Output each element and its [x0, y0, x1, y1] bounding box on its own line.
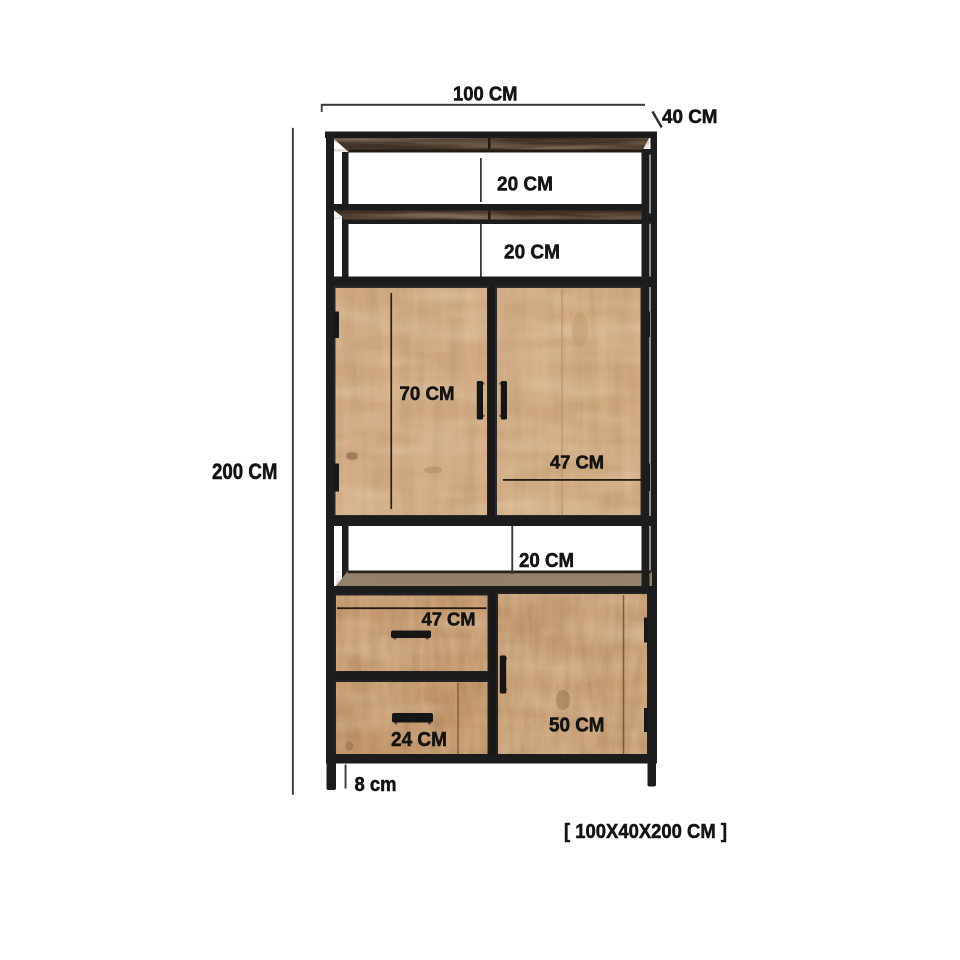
svg-text:20 CM: 20 CM [497, 173, 553, 196]
svg-text:24 CM: 24 CM [391, 728, 447, 751]
svg-text:40 CM: 40 CM [662, 107, 718, 128]
svg-text:100 CM: 100 CM [453, 83, 518, 106]
svg-text:200 CM: 200 CM [212, 459, 278, 484]
svg-text:50 CM: 50 CM [549, 714, 605, 737]
svg-text:20 CM: 20 CM [519, 549, 574, 572]
svg-text:47 CM: 47 CM [422, 609, 476, 630]
svg-text:20 CM: 20 CM [504, 241, 560, 264]
svg-text:8 cm: 8 cm [355, 773, 397, 796]
svg-text:70 CM: 70 CM [400, 383, 455, 405]
svg-text:47 CM: 47 CM [550, 452, 604, 473]
svg-text:[ 100X40X200 CM ]: [ 100X40X200 CM ] [564, 820, 727, 843]
